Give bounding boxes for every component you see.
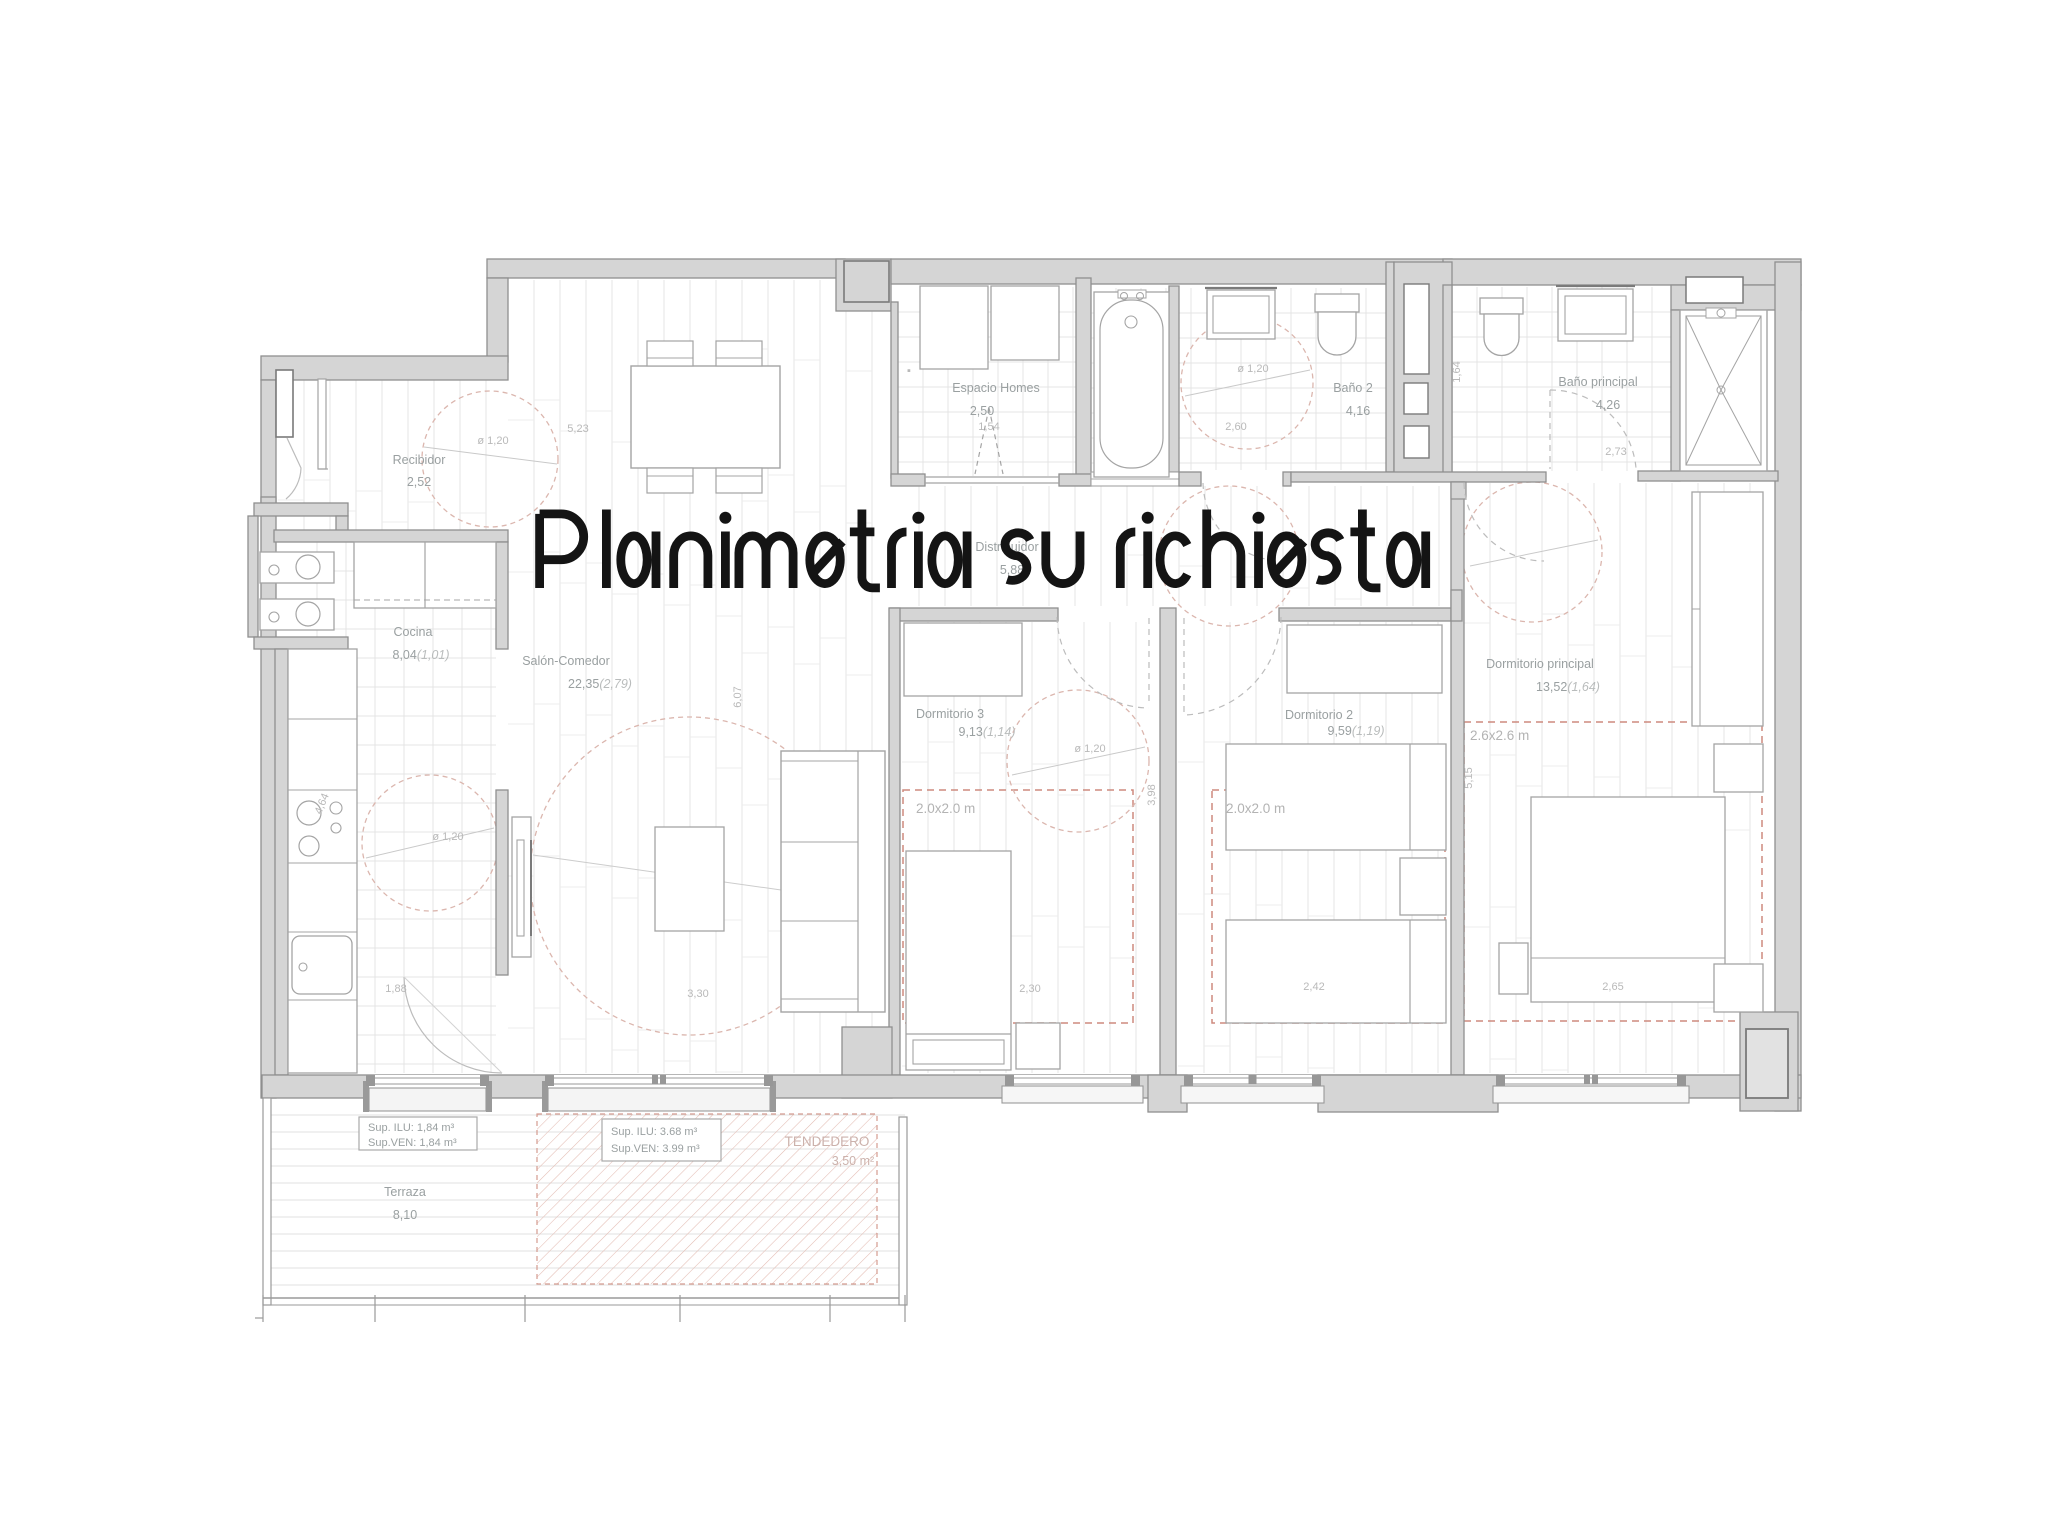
svg-text:ø 1,20: ø 1,20 — [1074, 743, 1105, 755]
svg-text:9,13(1,14): 9,13(1,14) — [959, 725, 1016, 739]
svg-text:ø 1,20: ø 1,20 — [477, 435, 508, 447]
svg-text:Baño 2: Baño 2 — [1333, 381, 1373, 395]
svg-text:▪: ▪ — [907, 365, 911, 377]
svg-text:22,35(2,79): 22,35(2,79) — [568, 677, 632, 691]
svg-text:9,59(1,19): 9,59(1,19) — [1328, 724, 1385, 738]
svg-text:2,30: 2,30 — [1019, 983, 1040, 995]
svg-text:2,42: 2,42 — [1303, 981, 1324, 993]
svg-text:4,16: 4,16 — [1346, 404, 1370, 418]
svg-text:TENDEDERO: TENDEDERO — [785, 1134, 870, 1149]
svg-text:Sup. ILU: 3.68 m³: Sup. ILU: 3.68 m³ — [611, 1126, 698, 1138]
svg-text:3,30: 3,30 — [687, 988, 708, 1000]
svg-text:Dormitorio 2: Dormitorio 2 — [1285, 708, 1353, 722]
svg-text:2,65: 2,65 — [1602, 981, 1623, 993]
svg-text:5,15: 5,15 — [1463, 767, 1475, 788]
svg-text:2.0x2.0 m: 2.0x2.0 m — [916, 801, 975, 816]
svg-text:2.0x2.0 m: 2.0x2.0 m — [1226, 801, 1285, 816]
svg-text:1,64: 1,64 — [1451, 361, 1463, 382]
svg-text:3,50 m²: 3,50 m² — [832, 1154, 874, 1168]
svg-text:Cocina: Cocina — [394, 625, 433, 639]
svg-text:1,54: 1,54 — [978, 421, 999, 433]
svg-text:13,52(1,64): 13,52(1,64) — [1536, 680, 1600, 694]
svg-text:2,60: 2,60 — [1225, 421, 1246, 433]
svg-text:Sup.VEN: 3.99 m³: Sup.VEN: 3.99 m³ — [611, 1143, 700, 1155]
svg-text:Sup. ILU: 1,84 m³: Sup. ILU: 1,84 m³ — [368, 1122, 455, 1134]
svg-text:5,23: 5,23 — [567, 423, 588, 435]
svg-text:2.6x2.6 m: 2.6x2.6 m — [1470, 728, 1529, 743]
svg-text:4,26: 4,26 — [1596, 398, 1620, 412]
svg-text:Terraza: Terraza — [384, 1185, 426, 1199]
svg-text:Recibidor: Recibidor — [393, 453, 446, 467]
svg-text:Salón-Comedor: Salón-Comedor — [522, 654, 610, 668]
svg-text:Dormitorio 3: Dormitorio 3 — [916, 707, 984, 721]
svg-text:ø 1,20: ø 1,20 — [432, 831, 463, 843]
svg-text:2,73: 2,73 — [1605, 446, 1626, 458]
svg-text:Dormitorio principal: Dormitorio principal — [1486, 657, 1594, 671]
svg-text:Espacio Homes: Espacio Homes — [952, 381, 1040, 395]
svg-text:8,04(1,01): 8,04(1,01) — [393, 648, 450, 662]
svg-text:Sup.VEN: 1,84 m³: Sup.VEN: 1,84 m³ — [368, 1137, 457, 1149]
svg-text:3,98: 3,98 — [1146, 784, 1158, 805]
svg-text:2,52: 2,52 — [407, 475, 431, 489]
svg-text:6,07: 6,07 — [732, 686, 744, 707]
svg-text:Baño principal: Baño principal — [1558, 375, 1637, 389]
svg-text:1,88: 1,88 — [385, 983, 406, 995]
svg-text:8,10: 8,10 — [393, 1208, 417, 1222]
svg-text:2,50: 2,50 — [970, 404, 994, 418]
svg-text:ø 1,20: ø 1,20 — [1237, 363, 1268, 375]
